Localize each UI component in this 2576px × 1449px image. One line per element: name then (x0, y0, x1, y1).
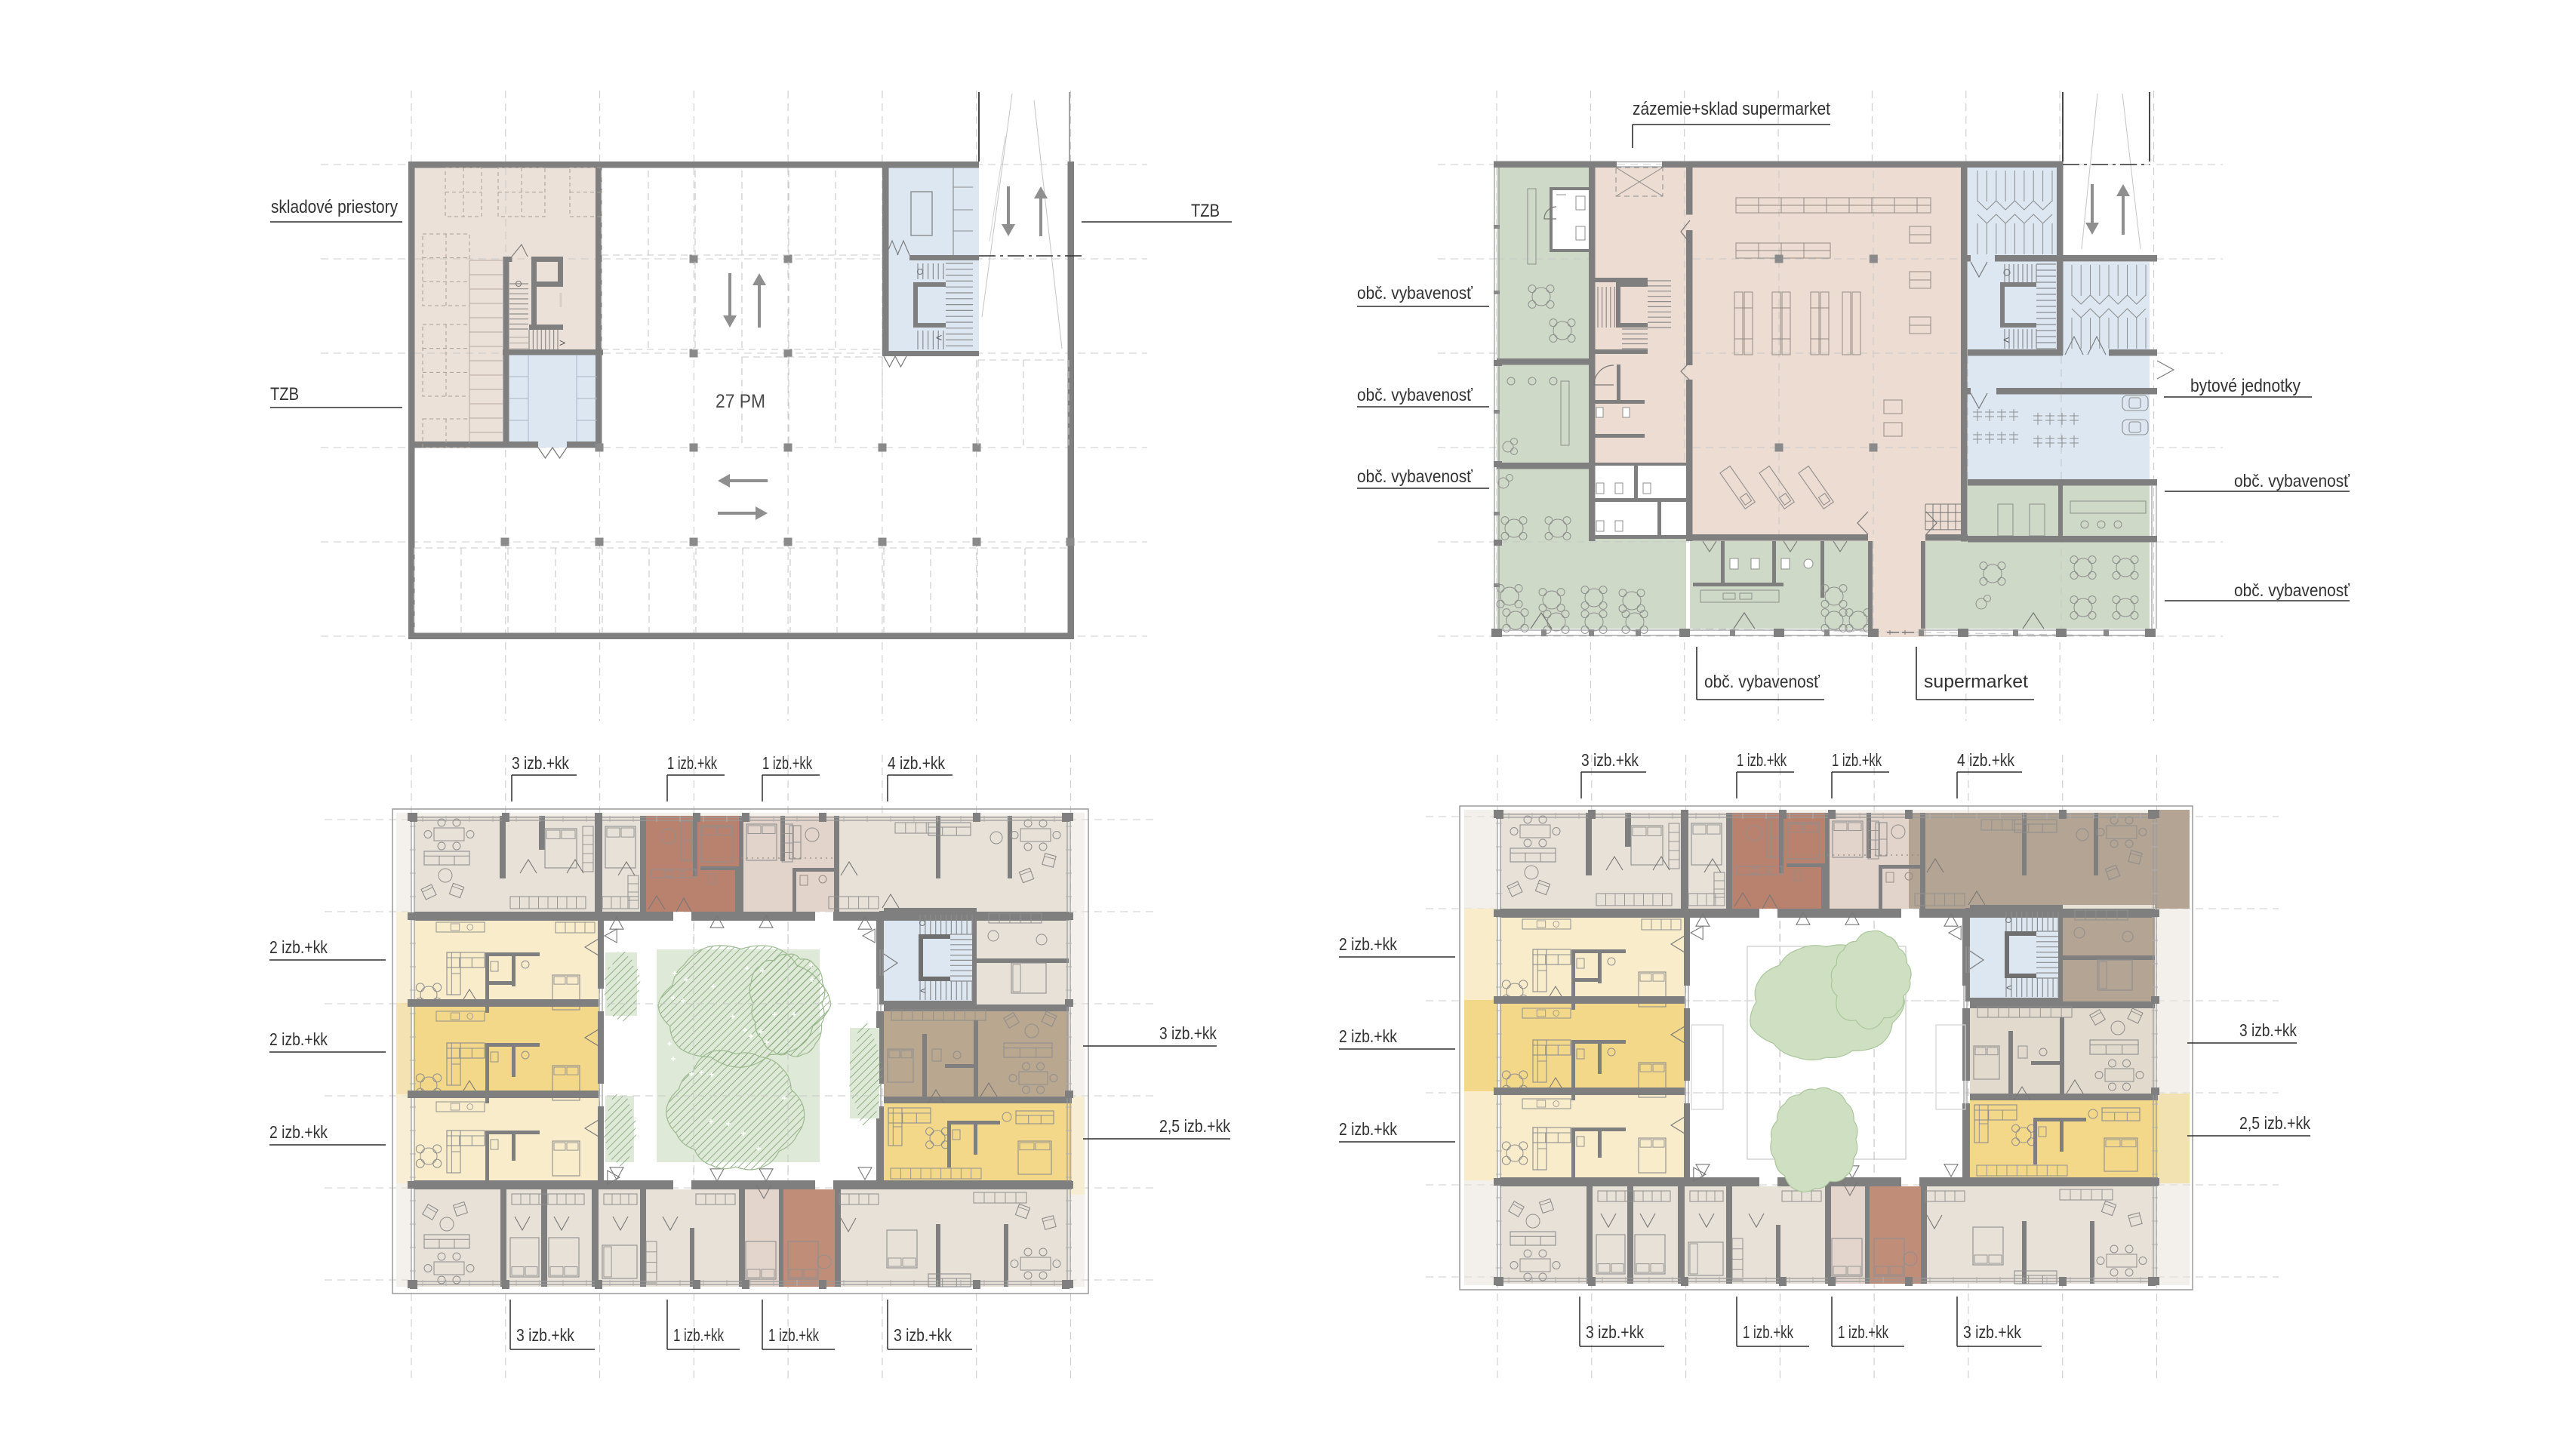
svg-text:2 izb.+kk: 2 izb.+kk (269, 937, 328, 957)
svg-text:bytové jednotky: bytové jednotky (2190, 376, 2301, 396)
svg-text:1 izb.+kk: 1 izb.+kk (1832, 750, 1882, 770)
svg-text:<: < (2006, 982, 2012, 993)
svg-text:1 izb.+kk: 1 izb.+kk (1743, 1322, 1793, 1342)
svg-text:2,5 izb.+kk: 2,5 izb.+kk (1159, 1116, 1230, 1136)
svg-text:3 izb.+kk: 3 izb.+kk (512, 753, 569, 773)
svg-text:zázemie+sklad supermarket: zázemie+sklad supermarket (1633, 99, 1830, 119)
svg-text:3 izb.+kk: 3 izb.+kk (1581, 750, 1639, 770)
svg-text:TZB: TZB (270, 384, 299, 405)
svg-text:1 izb.+kk: 1 izb.+kk (1838, 1322, 1888, 1342)
svg-text:obč. vybavenosť: obč. vybavenosť (1357, 385, 1473, 405)
svg-text:1 izb.+kk: 1 izb.+kk (762, 753, 812, 773)
svg-text:<: < (2003, 334, 2009, 346)
svg-text:skladové priestory: skladové priestory (271, 197, 398, 217)
svg-text:obč. vybavenosť: obč. vybavenosť (2234, 471, 2350, 491)
svg-text:3 izb.+kk: 3 izb.+kk (1586, 1322, 1644, 1342)
svg-text:1 izb.+kk: 1 izb.+kk (667, 753, 717, 773)
svg-text:2 izb.+kk: 2 izb.+kk (1339, 1026, 1397, 1046)
svg-text:1 izb.+kk: 1 izb.+kk (673, 1325, 724, 1345)
svg-text:obč. vybavenosť: obč. vybavenosť (1357, 283, 1473, 303)
svg-text:<: < (920, 985, 926, 996)
svg-text:4 izb.+kk: 4 izb.+kk (1957, 750, 2014, 770)
svg-text:supermarket: supermarket (1924, 672, 2028, 692)
svg-text:<: < (936, 331, 942, 343)
svg-text:4 izb.+kk: 4 izb.+kk (888, 753, 945, 773)
svg-text:3 izb.+kk: 3 izb.+kk (1963, 1322, 2021, 1342)
svg-text:27 PM: 27 PM (716, 391, 765, 412)
svg-text:TZB: TZB (1191, 201, 1220, 221)
svg-text:2 izb.+kk: 2 izb.+kk (269, 1029, 328, 1049)
svg-text:3 izb.+kk: 3 izb.+kk (894, 1325, 952, 1345)
svg-text:1 izb.+kk: 1 izb.+kk (768, 1325, 819, 1345)
svg-text:obč. vybavenosť: obč. vybavenosť (1704, 672, 1820, 691)
svg-text:2 izb.+kk: 2 izb.+kk (1339, 934, 1397, 954)
svg-text:>: > (559, 337, 565, 349)
svg-text:3 izb.+kk: 3 izb.+kk (516, 1325, 574, 1345)
svg-text:3 izb.+kk: 3 izb.+kk (1159, 1023, 1217, 1043)
svg-text:2 izb.+kk: 2 izb.+kk (1339, 1119, 1397, 1139)
svg-text:2 izb.+kk: 2 izb.+kk (269, 1122, 328, 1142)
svg-text:obč. vybavenosť: obč. vybavenosť (1357, 466, 1473, 486)
svg-text:obč. vybavenosť: obč. vybavenosť (2234, 580, 2350, 600)
svg-text:1 izb.+kk: 1 izb.+kk (1737, 750, 1787, 770)
svg-text:2,5 izb.+kk: 2,5 izb.+kk (2239, 1113, 2310, 1133)
svg-text:3 izb.+kk: 3 izb.+kk (2239, 1020, 2297, 1040)
